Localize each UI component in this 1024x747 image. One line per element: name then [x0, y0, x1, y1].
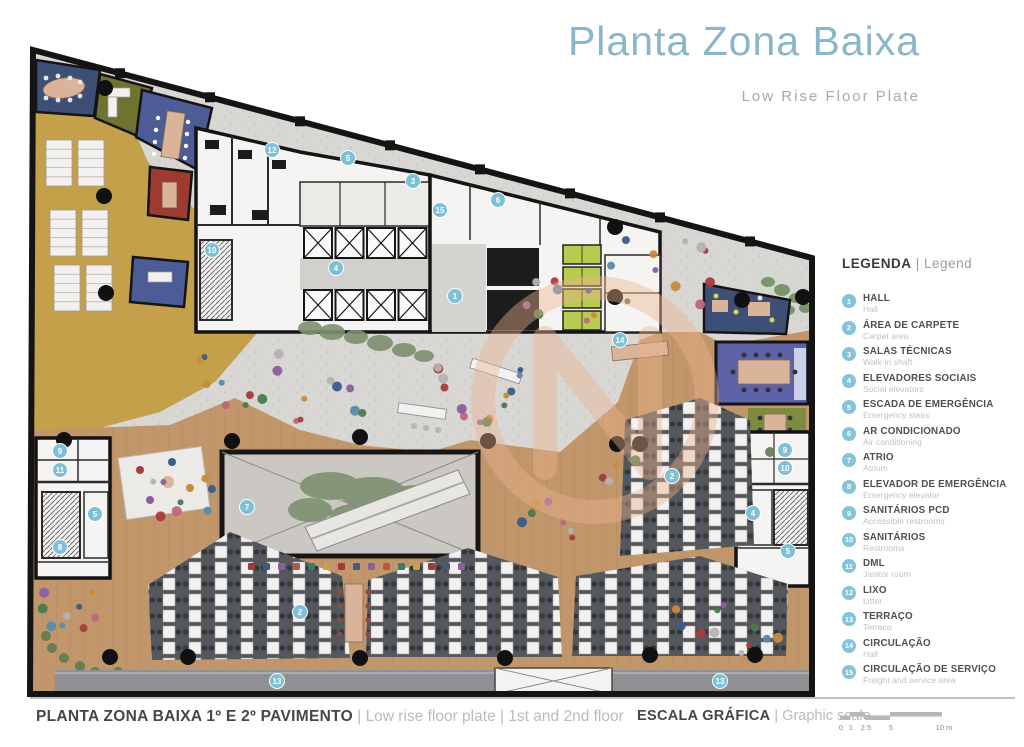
svg-text:2: 2 [298, 608, 303, 617]
legend-item-label-en: Carpet area [863, 331, 959, 341]
legend-item-label-en: Terraco [863, 622, 913, 632]
plan-marker: 13 [713, 674, 728, 689]
legend-panel: LEGENDA | Legend 1HALLHall2ÁREA DE CARPE… [842, 256, 1022, 691]
legend-item-label-pt: DML [863, 558, 911, 569]
page-subtitle: Low Rise Floor Plate [742, 88, 920, 105]
plan-marker: 8 [53, 540, 68, 555]
svg-text:11: 11 [56, 466, 65, 475]
svg-text:1: 1 [849, 723, 853, 732]
legend-item: 1HALLHall [842, 293, 1022, 314]
legend-item-label-pt: CIRCULAÇÃO [863, 638, 931, 649]
legend-item-number: 10 [842, 533, 856, 547]
legend-item-label-pt: SANITÁRIOS [863, 532, 925, 543]
legend-item: 4ELEVADORES SOCIAISSocial elevators [842, 373, 1022, 394]
legend-item-label-en: Hall [863, 649, 931, 659]
legend-item-label-pt: CIRCULAÇÃO DE SERVIÇO [863, 664, 996, 675]
legend-item: 13TERRAÇOTerraco [842, 611, 1022, 632]
legend-item-label-pt: ELEVADORES SOCIAIS [863, 373, 976, 384]
legend-item-label-en: Restrooms [863, 543, 925, 553]
legend-item-label-pt: LIXO [863, 585, 887, 596]
plan-marker: 10 [205, 243, 220, 258]
legend-item-label-pt: AR CONDICIONADO [863, 426, 961, 437]
legend-item-label-pt: SANITÁRIOS PCD [863, 505, 950, 516]
legend-item-number: 11 [842, 559, 856, 573]
svg-text:9: 9 [58, 447, 63, 456]
legend-item: 14CIRCULAÇÃOHall [842, 638, 1022, 659]
legend-item-number: 14 [842, 639, 856, 653]
terrace [55, 668, 810, 694]
legend-item: 9SANITÁRIOS PCDAccessible restrooms [842, 505, 1022, 526]
svg-text:4: 4 [751, 509, 756, 518]
plan-marker: 2 [665, 469, 680, 484]
svg-text:5: 5 [93, 510, 98, 519]
svg-text:5: 5 [889, 723, 893, 732]
legend-item-number: 1 [842, 294, 856, 308]
legend-item: 5ESCADA DE EMERGÊNCIAEmergency stairs [842, 399, 1022, 420]
legend-list: 1HALLHall2ÁREA DE CARPETECarpet area3SAL… [842, 293, 1022, 685]
plan-marker: 13 [270, 674, 285, 689]
svg-text:2.5: 2.5 [861, 723, 871, 732]
legend-item-label-en: Freight and service area [863, 675, 996, 685]
atrium [222, 452, 478, 556]
svg-text:2: 2 [670, 472, 675, 481]
legend-item-label-en: Atrium [863, 463, 894, 473]
legend-item: 7ATRIOAtrium [842, 452, 1022, 473]
legend-item-label-pt: ELEVADOR DE EMERGÊNCIA [863, 479, 1007, 490]
legend-item-label-en: Air conditioning [863, 437, 961, 447]
plan-marker: 12 [265, 143, 280, 158]
legend-item: 8ELEVADOR DE EMERGÊNCIAEmergency elevato… [842, 479, 1022, 500]
plan-marker: 7 [240, 500, 255, 515]
plan-marker: 5 [341, 151, 356, 166]
legend-item-number: 4 [842, 374, 856, 388]
legend-item: 15CIRCULAÇÃO DE SERVIÇOFreight and servi… [842, 664, 1022, 685]
legend-item-label-pt: ÁREA DE CARPETE [863, 320, 959, 331]
plan-marker: 6 [491, 193, 506, 208]
svg-text:12: 12 [268, 146, 277, 155]
legend-heading: LEGENDA | Legend [842, 256, 1022, 271]
legend-item-label-en: Emergency elevator [863, 490, 1007, 500]
legend-item-number: 7 [842, 453, 856, 467]
plan-marker: 14 [613, 333, 628, 348]
legend-item-label-en: Social elevators [863, 384, 976, 394]
svg-text:7: 7 [245, 503, 250, 512]
scale-caption: ESCALA GRÁFICA | Graphic scale [637, 708, 871, 724]
svg-text:13: 13 [716, 677, 725, 686]
legend-item-label-en: Janitor room [863, 569, 911, 579]
plan-marker: 1 [448, 289, 463, 304]
page-title: Planta Zona Baixa [568, 18, 920, 65]
svg-text:5: 5 [346, 154, 351, 163]
drawing-caption: PLANTA ZONA BAIXA 1º E 2º PAVIMENTO | Lo… [36, 708, 624, 726]
legend-item: 11DMLJanitor room [842, 558, 1022, 579]
plan-marker: 3 [406, 174, 421, 189]
legend-item-label-en: Litter [863, 596, 887, 606]
graphic-scale-bar: 0 1 2.5 5 10 m [838, 704, 978, 734]
legend-item-number: 6 [842, 427, 856, 441]
plan-marker: 5 [781, 544, 796, 559]
legend-item-number: 5 [842, 400, 856, 414]
plan-marker: 15 [433, 203, 448, 218]
legend-item-number: 2 [842, 321, 856, 335]
legend-item-number: 15 [842, 665, 856, 679]
legend-item: 10SANITÁRIOSRestrooms [842, 532, 1022, 553]
legend-item-label-pt: TERRAÇO [863, 611, 913, 622]
plan-marker: 4 [746, 506, 761, 521]
legend-item: 12LIXOLitter [842, 585, 1022, 606]
legend-item-number: 8 [842, 480, 856, 494]
legend-item-label-en: Accessible restrooms [863, 516, 950, 526]
legend-item-label-en: Emergency stairs [863, 410, 993, 420]
plan-marker: 11 [53, 463, 68, 478]
legend-item-label-pt: SALAS TÉCNICAS [863, 346, 952, 357]
plan-marker: 10 [778, 461, 793, 476]
legend-item-label-pt: HALL [863, 293, 890, 304]
chair-row [248, 563, 465, 570]
plan-marker: 2 [293, 605, 308, 620]
svg-text:1: 1 [453, 292, 458, 301]
legend-item-number: 12 [842, 586, 856, 600]
legend-item-label-en: Walk-in shaft [863, 357, 952, 367]
plan-marker: 5 [88, 507, 103, 522]
svg-text:14: 14 [616, 336, 625, 345]
svg-text:15: 15 [436, 206, 445, 215]
legend-item: 2ÁREA DE CARPETECarpet area [842, 320, 1022, 341]
legend-item-label-pt: ESCADA DE EMERGÊNCIA [863, 399, 993, 410]
footer: PLANTA ZONA BAIXA 1º E 2º PAVIMENTO | Lo… [0, 704, 1024, 744]
legend-item: 3SALAS TÉCNICASWalk-in shaft [842, 346, 1022, 367]
svg-text:6: 6 [496, 196, 501, 205]
svg-text:0: 0 [839, 723, 843, 732]
svg-text:10: 10 [781, 464, 790, 473]
svg-text:10: 10 [208, 246, 217, 255]
svg-text:8: 8 [58, 543, 63, 552]
svg-text:10 m: 10 m [936, 723, 953, 732]
svg-text:3: 3 [411, 177, 416, 186]
plan-marker: 4 [329, 261, 344, 276]
legend-item-label-pt: ATRIO [863, 452, 894, 463]
legend-item-number: 13 [842, 612, 856, 626]
legend-item-label-en: Hall [863, 304, 890, 314]
legend-item-number: 9 [842, 506, 856, 520]
plan-marker: 9 [53, 444, 68, 459]
svg-text:4: 4 [334, 264, 339, 273]
legend-item-number: 3 [842, 347, 856, 361]
plan-marker: 9 [778, 443, 793, 458]
svg-text:9: 9 [783, 446, 788, 455]
legend-item: 6AR CONDICIONADOAir conditioning [842, 426, 1022, 447]
svg-text:13: 13 [273, 677, 282, 686]
svg-text:5: 5 [786, 547, 791, 556]
